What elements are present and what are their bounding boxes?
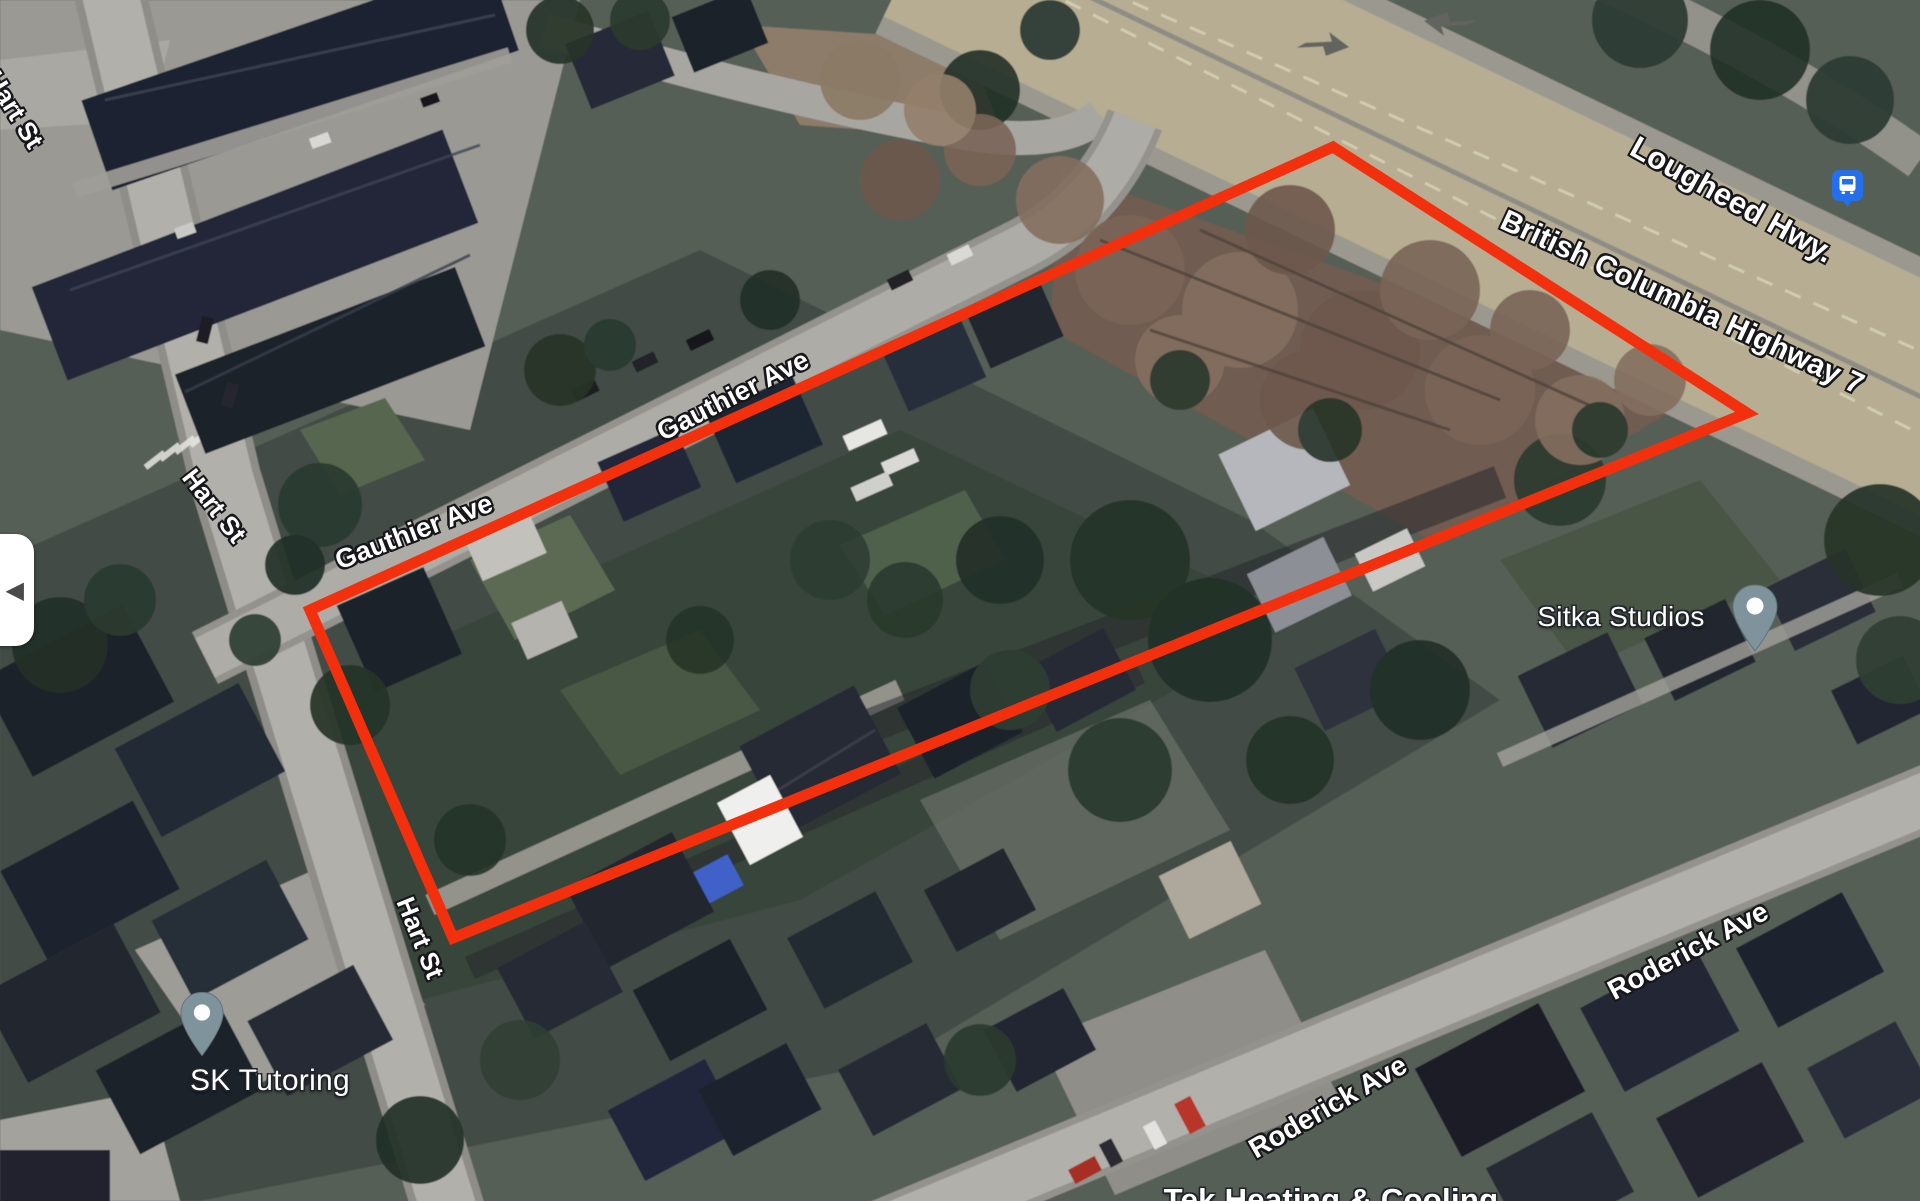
- map-pin-icon-sk-tutoring[interactable]: [179, 990, 225, 1058]
- bus-icon[interactable]: [1831, 169, 1864, 208]
- collapse-panel-button[interactable]: ◀: [0, 534, 34, 646]
- map-pin-icon-sitka-studios[interactable]: [1731, 583, 1779, 653]
- poi-label-tek-heating[interactable]: Tek Heating & Cooling: [1164, 1182, 1499, 1201]
- poi-label-sitka-studios[interactable]: Sitka Studios: [1537, 601, 1704, 633]
- satellite-map-canvas[interactable]: Hart St Hart St Hart St Gauthier Ave Gau…: [0, 0, 1920, 1201]
- chevron-left-icon: ◀: [6, 578, 24, 602]
- poi-label-sk-tutoring[interactable]: SK Tutoring: [190, 1064, 350, 1098]
